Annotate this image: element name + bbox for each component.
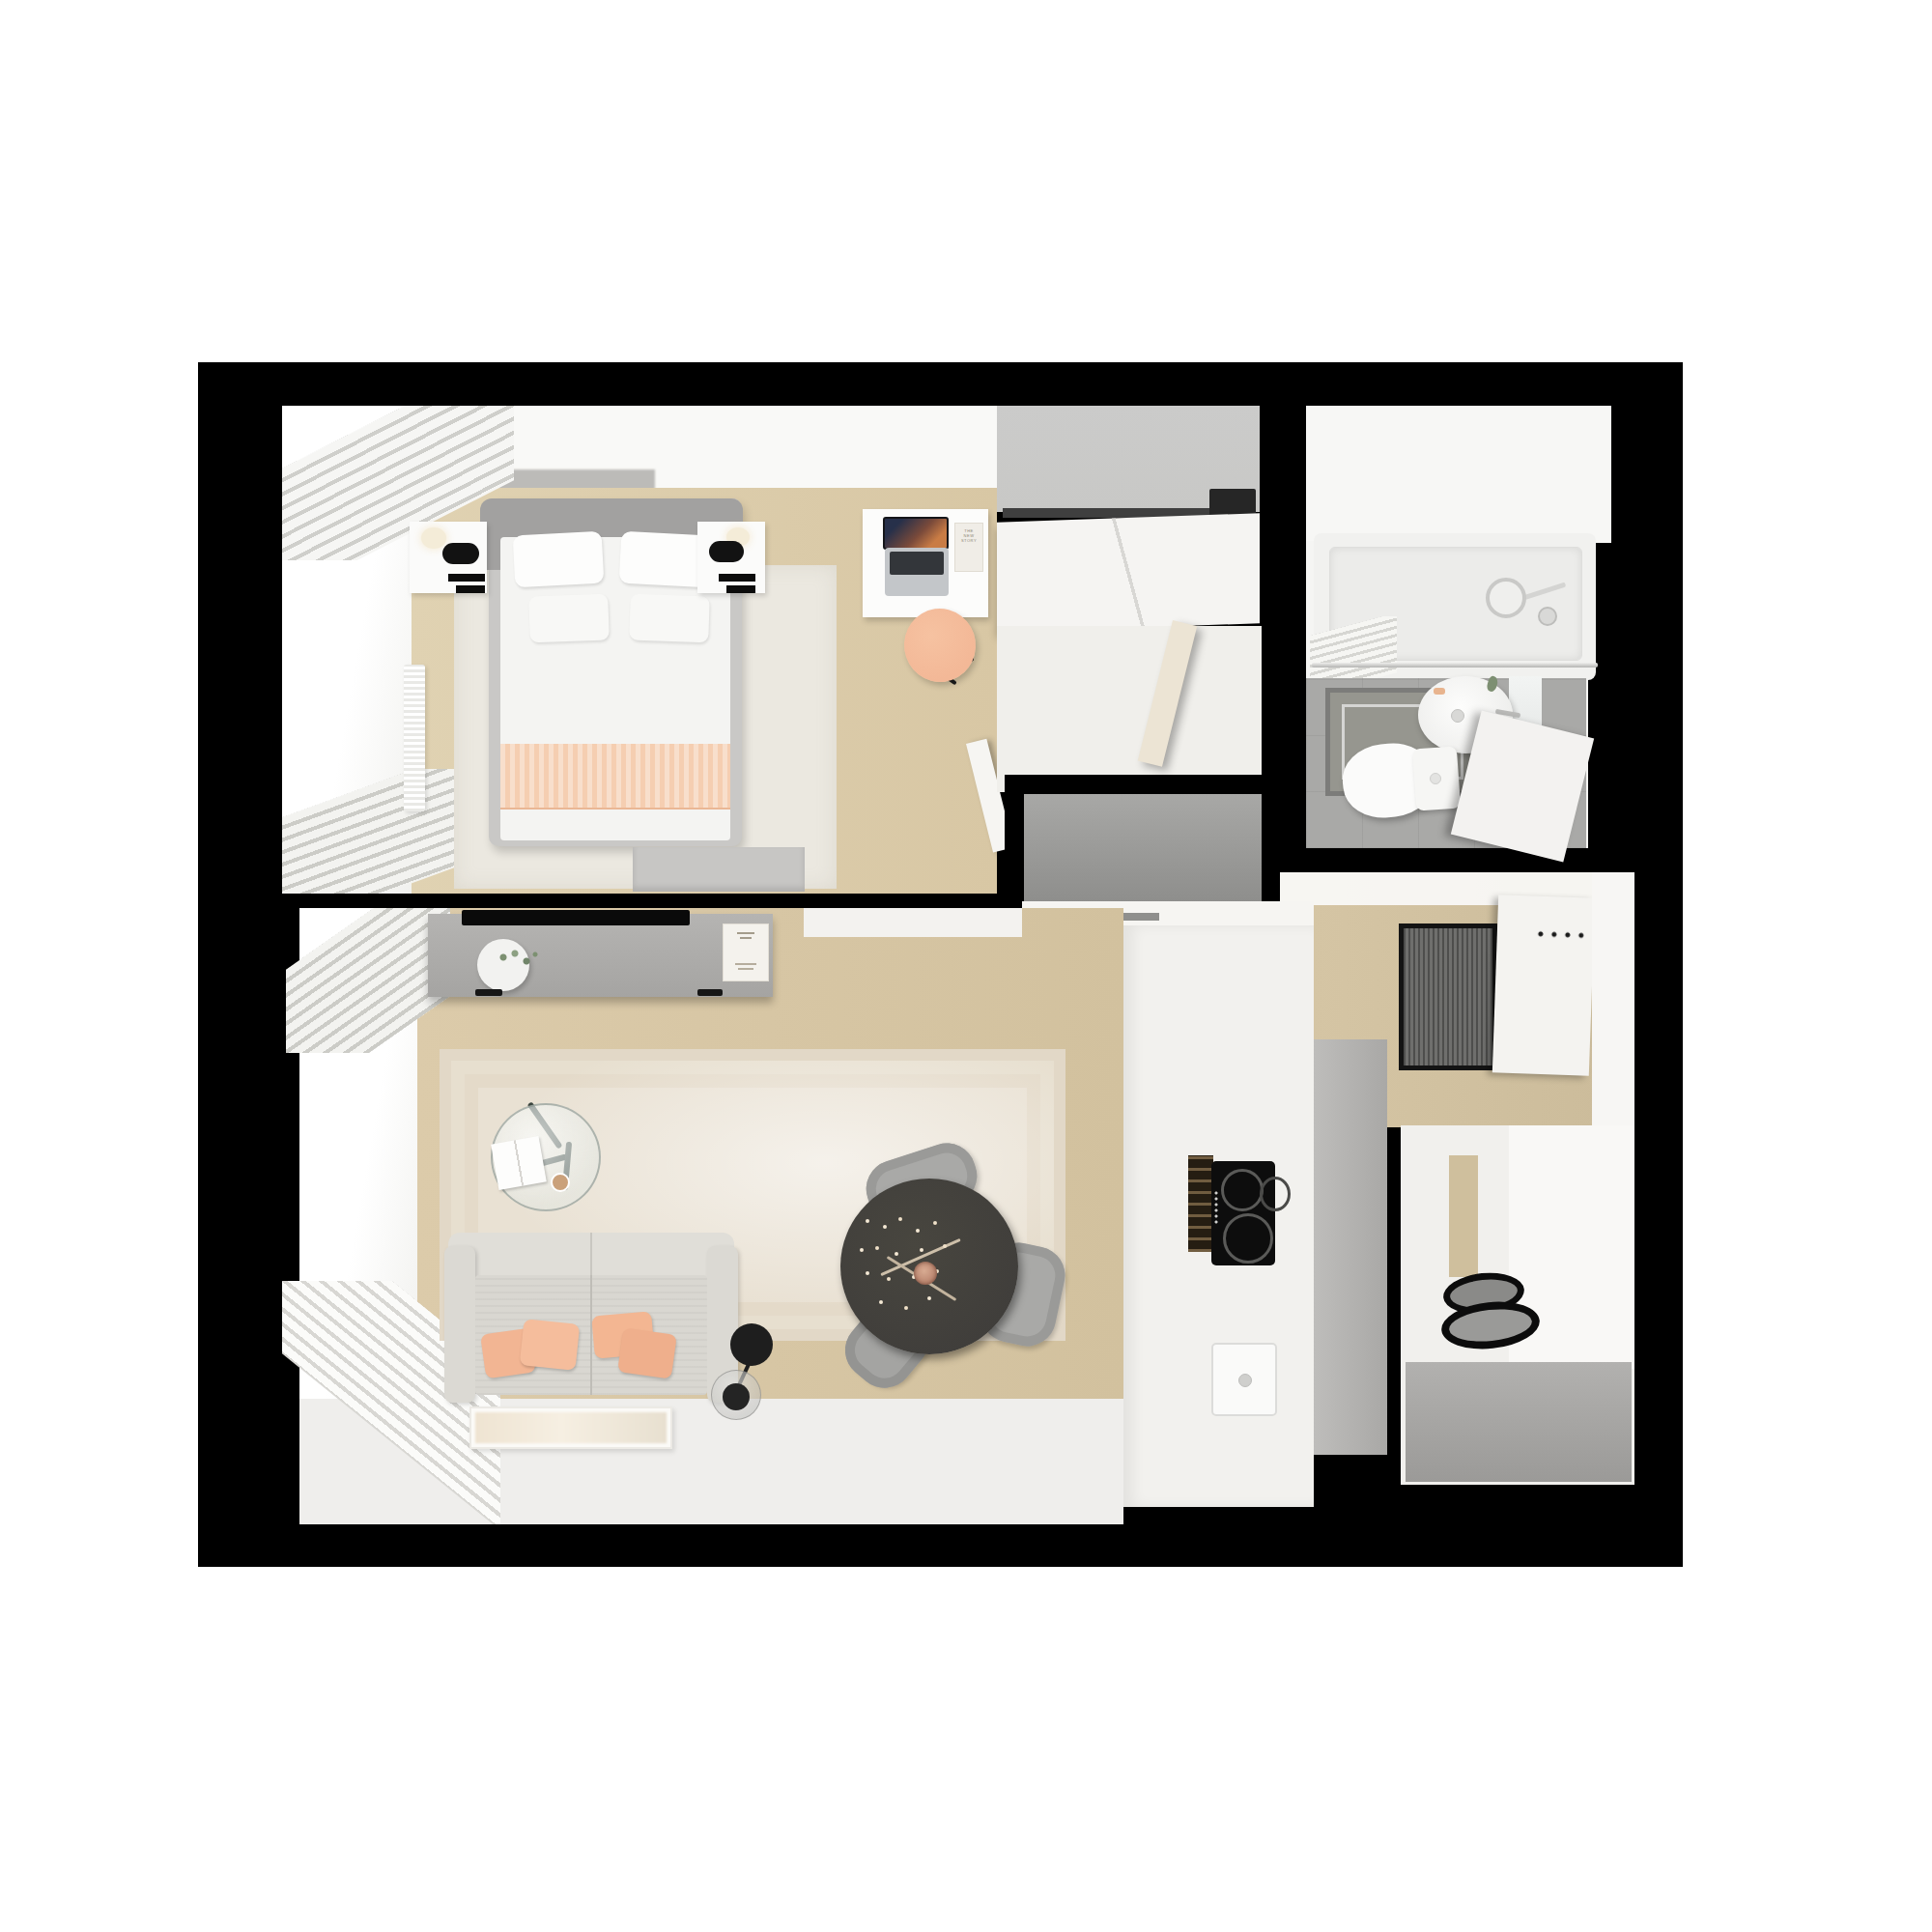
bedroom-radiator (404, 665, 425, 811)
table-lamp (421, 527, 446, 549)
laptop-key-block (890, 552, 944, 575)
entry-doormat (1399, 923, 1497, 1070)
shower-head (1486, 578, 1526, 618)
shower-curtain-rod (1312, 663, 1598, 668)
curtain-fold-texture (286, 908, 450, 1053)
bed-pillow (513, 531, 605, 588)
painting-wash (475, 1412, 667, 1443)
cooktop-burner (1260, 1177, 1291, 1211)
sink-drain (1238, 1374, 1252, 1387)
coffee-cup (551, 1173, 570, 1192)
corridor-floor (997, 626, 1262, 792)
console-handle (697, 989, 723, 996)
sofa-cushion-peach (617, 1327, 677, 1378)
eucalyptus-sprigs (498, 947, 541, 976)
cooktop-burner (1223, 1213, 1273, 1264)
sofa-cushion-peach (520, 1319, 581, 1371)
table-branch-blossoms (866, 1219, 869, 1223)
entry-door (1492, 895, 1595, 1075)
bed-pillow (528, 594, 610, 643)
book-text-lines (733, 930, 758, 973)
entry-door-hooks (1534, 929, 1584, 941)
living-north-shelf (804, 908, 1022, 937)
bed-pillow (629, 594, 710, 643)
wardrobe-sliding-doors (997, 513, 1260, 632)
kitchen-right-wood-sliver (1449, 1155, 1478, 1277)
floor-lamp-disc (730, 1323, 773, 1366)
soap-bar (1434, 688, 1445, 695)
fridge-side-panel (1314, 1039, 1387, 1455)
cooktop-burner (1221, 1169, 1264, 1211)
bathroom-room-upper (1306, 406, 1611, 543)
nightstand-drawer-handles (446, 572, 489, 595)
wall-segment (1005, 775, 1262, 794)
curtain-fold-texture (282, 769, 471, 894)
hall-right-wall (1592, 872, 1634, 1127)
laptop-keyboard (885, 548, 949, 596)
console-art-book (723, 923, 769, 981)
kitchen-sink (1211, 1343, 1277, 1416)
wall-segment (1005, 792, 1024, 906)
floor-lamp-counterweight (723, 1383, 750, 1410)
laptop-screen (883, 517, 949, 550)
living-curtain-bunch (286, 908, 450, 1053)
toilet-flush-button (1430, 773, 1441, 784)
cooktop-controls (1214, 1190, 1218, 1225)
console-handle (475, 989, 502, 996)
built-in-oven (1188, 1155, 1213, 1252)
shower-knob (1538, 607, 1557, 626)
wall-sconce (709, 541, 744, 562)
table-vase (914, 1262, 937, 1285)
bedroom-curtain-bunch (282, 769, 471, 894)
bedroom-dresser (633, 847, 805, 892)
nightstand-drawer-handles (717, 572, 759, 595)
wall-sconce (442, 543, 479, 564)
induction-cooktop (1211, 1161, 1275, 1265)
desk-booklet: THE NEW STORY (954, 523, 983, 572)
kitchen-cabinet-front (1406, 1362, 1632, 1482)
sofa-armrest (444, 1246, 475, 1403)
tv-flat-screen (462, 910, 690, 925)
hall-storage-top (1024, 794, 1262, 906)
basin-drain (1451, 709, 1464, 723)
open-magazine (491, 1136, 547, 1190)
floor-painting (469, 1406, 672, 1449)
bed-blanket (500, 744, 730, 810)
render-page: THE NEW STORY (0, 0, 1932, 1932)
wardrobe-rail-handle (1209, 489, 1256, 516)
